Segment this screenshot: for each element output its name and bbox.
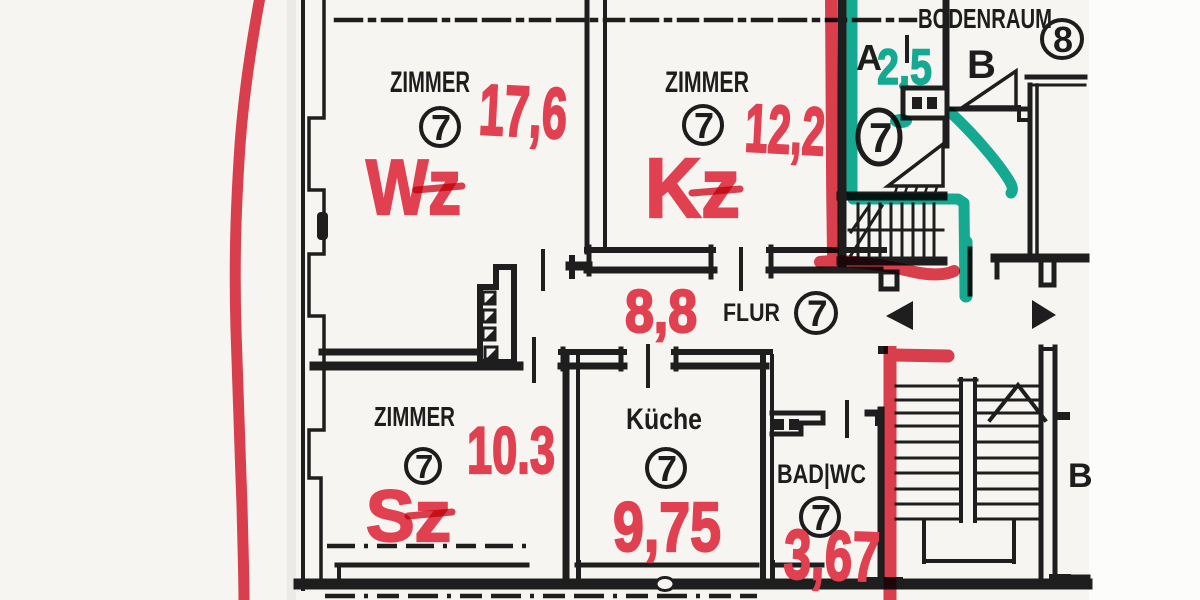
svg-text:7: 7 (869, 114, 892, 161)
svg-text:B: B (967, 43, 996, 87)
svg-text:BODENRAUM: BODENRAUM (918, 3, 1052, 34)
svg-text:Küche: Küche (626, 403, 702, 436)
svg-text:8,8: 8,8 (625, 278, 697, 345)
svg-text:BAD|WC: BAD|WC (777, 459, 866, 489)
svg-text:7: 7 (694, 105, 714, 146)
svg-text:ZIMMER: ZIMMER (665, 66, 749, 99)
svg-text:7: 7 (431, 107, 451, 148)
svg-text:9,75: 9,75 (613, 488, 721, 566)
svg-text:8: 8 (1053, 19, 1073, 60)
svg-text:FLUR: FLUR (723, 299, 780, 327)
svg-text:7: 7 (807, 293, 828, 334)
svg-text:10.3: 10.3 (467, 413, 555, 487)
svg-text:ZIMMER: ZIMMER (374, 401, 455, 432)
svg-text:ZIMMER: ZIMMER (390, 66, 470, 99)
svg-text:7: 7 (657, 448, 677, 489)
svg-text:12,2: 12,2 (743, 90, 827, 170)
svg-text:B: B (1068, 457, 1093, 495)
svg-text:17,6: 17,6 (477, 70, 569, 154)
svg-text:3,67: 3,67 (782, 515, 881, 596)
